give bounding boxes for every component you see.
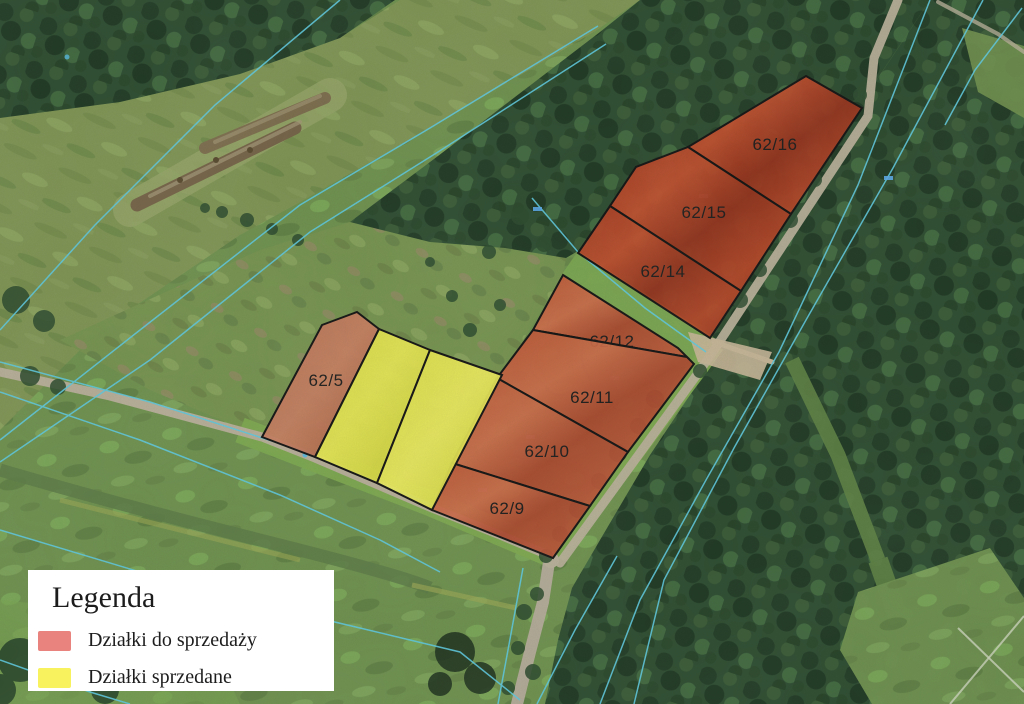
legend-rows: Działki do sprzedażyDziałki sprzedane — [28, 629, 334, 689]
legend-row-sold: Działki sprzedane — [38, 666, 334, 689]
map-canvas: 62/1662/1562/1462/1262/1162/1062/962/5 L… — [0, 0, 1024, 704]
legend-swatch-sold — [38, 668, 71, 688]
legend-swatch-for_sale — [38, 631, 71, 651]
legend-title: Legenda — [52, 581, 334, 615]
legend: Legenda Działki do sprzedażyDziałki sprz… — [28, 570, 334, 691]
legend-label-sold: Działki sprzedane — [88, 666, 232, 689]
legend-label-for_sale: Działki do sprzedaży — [88, 629, 257, 652]
legend-row-for_sale: Działki do sprzedaży — [38, 629, 334, 652]
